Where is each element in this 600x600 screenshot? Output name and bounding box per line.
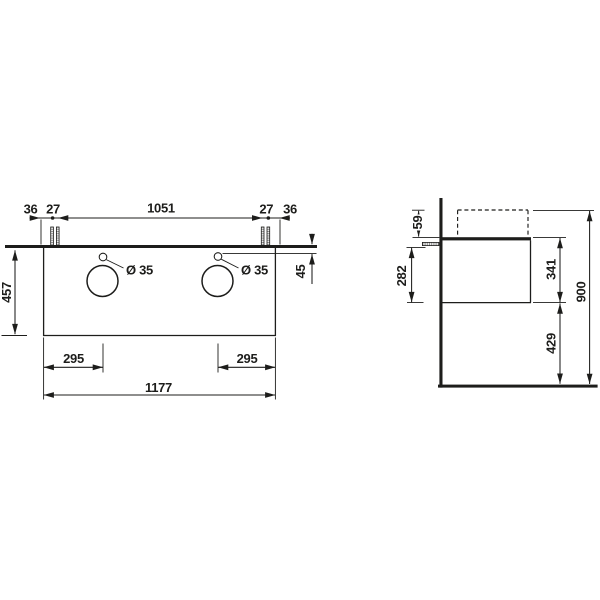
dim-cabinet-height-label: 341 xyxy=(544,259,559,280)
hanger-bolt-icon xyxy=(422,242,439,245)
hanger-bolt-icon xyxy=(56,227,59,246)
hanger-bolt-icon xyxy=(51,227,54,246)
dimension-dot xyxy=(51,216,55,220)
dim-pair-left-label: 27 xyxy=(46,202,60,217)
dimension-dot xyxy=(267,216,271,220)
washbasin-dashed-outline xyxy=(458,210,528,237)
dim-basin-top-offset-label: 59 xyxy=(410,216,425,230)
height-dimension: 457 xyxy=(0,250,27,335)
dim-basin-left-label: 295 xyxy=(63,351,84,366)
cabinet-height-dimension: 341 xyxy=(544,238,561,302)
dim-bolt-to-bottom-label: 282 xyxy=(394,266,409,287)
dim-top-thickness-label: 45 xyxy=(293,265,308,279)
faucet-hole-right xyxy=(214,253,222,261)
floor-line xyxy=(438,385,598,388)
dim-total-height-label: 900 xyxy=(574,282,589,303)
dim-total-width-label: 1177 xyxy=(145,380,172,395)
hanger-bolt-icon xyxy=(267,227,270,246)
technical-drawing-page: Ø 35 Ø 35 36 27 1051 27 36 457 xyxy=(0,0,600,600)
countertop-line xyxy=(5,245,317,248)
faucet-hole-label-left: Ø 35 xyxy=(126,263,153,278)
dim-edge-left-label: 36 xyxy=(24,202,38,217)
faucet-hole-label-right: Ø 35 xyxy=(241,263,268,278)
faucet-hole-left xyxy=(99,253,107,261)
extension-lines xyxy=(407,210,595,302)
bottom-dimension-chain: 295 295 1177 xyxy=(44,338,276,400)
hanger-bolts-front xyxy=(51,227,270,246)
dim-span-center-label: 1051 xyxy=(147,201,175,216)
basin-top-offset-dimension: 59 xyxy=(410,211,425,237)
dim-bottom-clearance-label: 429 xyxy=(544,333,559,354)
top-dimension-chain: 36 27 1051 27 36 xyxy=(24,201,297,245)
dim-height-label: 457 xyxy=(0,282,14,303)
front-view: Ø 35 Ø 35 36 27 1051 27 36 457 xyxy=(0,201,317,400)
cabinet-top-line xyxy=(441,237,531,240)
cabinet-outline xyxy=(44,248,276,336)
dim-edge-right-label: 36 xyxy=(283,202,297,217)
basin-cutout-left xyxy=(87,266,118,297)
dim-pair-right-label: 27 xyxy=(259,202,273,217)
wall-line xyxy=(439,198,442,388)
dim-basin-right-label: 295 xyxy=(237,351,258,366)
bolt-to-bottom-dimension: 282 xyxy=(394,248,412,302)
bottom-clearance-dimension: 429 xyxy=(544,303,561,383)
side-view: 59 282 341 429 900 xyxy=(394,198,598,388)
basin-cutout-right xyxy=(202,266,233,297)
vanity-dimension-drawing: Ø 35 Ø 35 36 27 1051 27 36 457 xyxy=(0,0,600,600)
total-height-dimension: 900 xyxy=(574,211,590,384)
hanger-bolt-icon xyxy=(261,227,264,246)
